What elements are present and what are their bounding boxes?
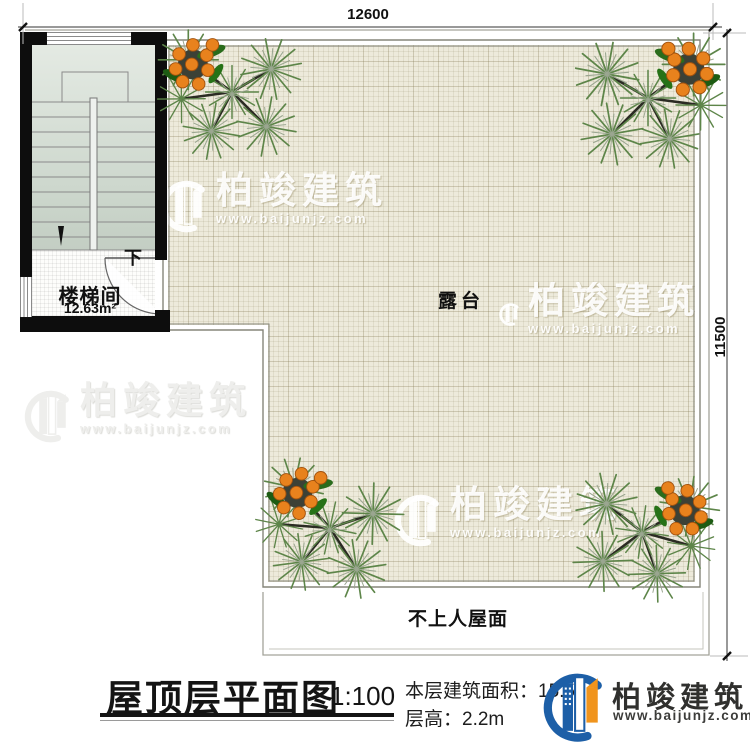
floor-area-label: 本层建筑面积： [405, 681, 538, 702]
brand-url: www.baijunjz.com [613, 708, 750, 723]
stair-direction-label: 下 [124, 244, 142, 270]
floor-plan-canvas: 柏竣建筑 www.baijunjz.com 柏竣建筑 www.baijunjz.… [0, 0, 750, 742]
terrace-area [163, 40, 700, 587]
stairwell-area-label: 12.63m² [40, 300, 140, 316]
window-top [46, 32, 132, 45]
dimension-right-label: 11500 [695, 312, 745, 362]
watermark-url-text: www.baijunjz.com [80, 422, 252, 435]
watermark-logo-icon [22, 382, 72, 444]
floor-height-label: 层高： [405, 709, 462, 730]
dimension-top-label: 12600 [328, 6, 408, 23]
roof-label: 不上人屋面 [393, 604, 523, 631]
floor-height-line: 层高：2.2m [405, 704, 504, 731]
terrace-label: 露台 [438, 286, 518, 313]
watermark: 柏竣建筑 www.baijunjz.com [22, 382, 252, 444]
stair-flight-area [32, 45, 155, 250]
window-left [20, 276, 32, 318]
drawing-scale: 1:100 [330, 681, 395, 712]
title-underline [100, 713, 394, 717]
watermark-brand-text: 柏竣建筑 [80, 382, 252, 419]
floor-height-value: 2.2m [462, 709, 504, 730]
title-underline-thin [100, 720, 394, 721]
brand-logo-icon [540, 664, 606, 742]
